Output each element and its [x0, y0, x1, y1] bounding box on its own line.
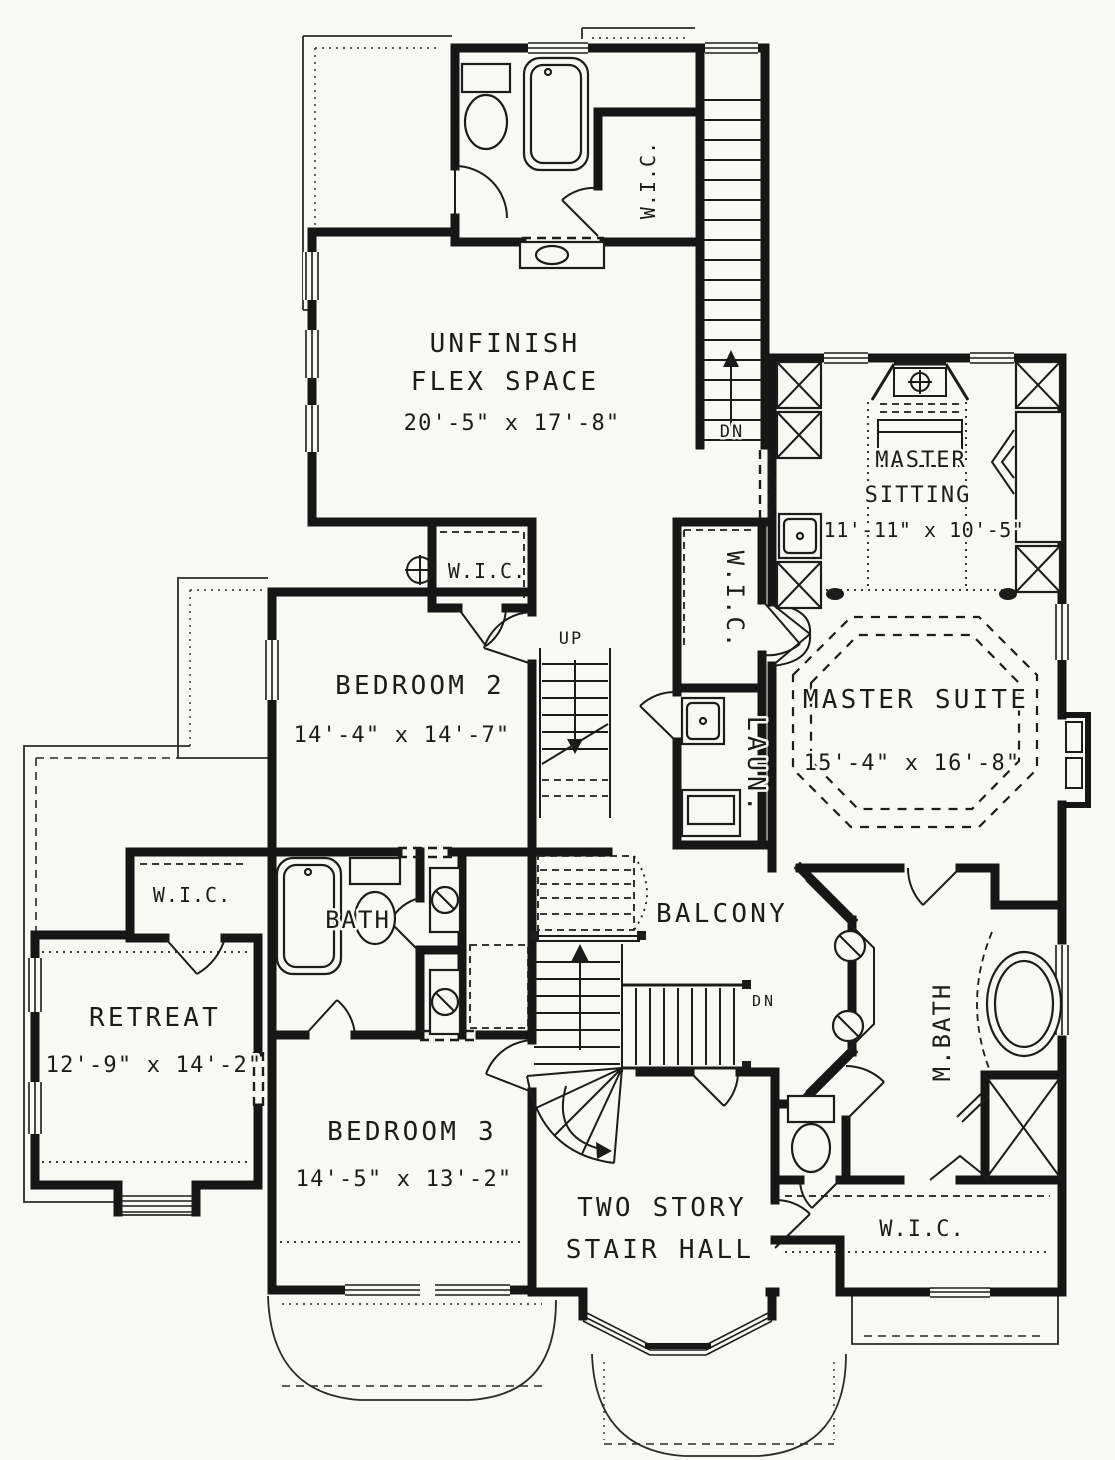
label-bedroom2-name: BEDROOM 2 [335, 671, 505, 701]
vanity-sink-icon [779, 514, 821, 558]
shower-icon [985, 1075, 1062, 1180]
cabinet-icon [777, 562, 821, 608]
label-master-suite-name: MASTER SUITE [803, 685, 1029, 715]
label-wic-bedroom2: W.I.C. [448, 559, 526, 583]
labels-layer: UNFINISH FLEX SPACE 20'-5" x 17'-8" W.I.… [46, 141, 1029, 1265]
toilet-icon [788, 1096, 834, 1172]
floor-plan: UNFINISH FLEX SPACE 20'-5" x 17'-8" W.I.… [0, 0, 1115, 1460]
cabinet-icon [1016, 546, 1060, 592]
label-stair-hall-line1: TWO STORY [577, 1193, 747, 1223]
label-flex-line1: UNFINISH [430, 329, 581, 359]
label-master-suite-dims: 15'-4" x 16'-8" [804, 751, 1021, 776]
label-bedroom3-name: BEDROOM 3 [327, 1117, 497, 1147]
label-flex-line2: FLEX SPACE [411, 367, 600, 397]
label-wic-master: W.I.C. [879, 1217, 964, 1242]
label-bedroom2-dims: 14'-4" x 14'-7" [294, 723, 511, 748]
cabinet-icon [777, 412, 821, 458]
label-wic-flex: W.I.C. [636, 141, 660, 219]
label-stairs-dn-balcony: DN [752, 992, 776, 1010]
label-bath: BATH [325, 906, 391, 934]
cabinet-icon [777, 362, 821, 408]
vanity-sink-icon [430, 970, 460, 1034]
label-stairs-up: UP [559, 629, 583, 649]
sink-icon [520, 242, 604, 268]
floor-plan-page: UNFINISH FLEX SPACE 20'-5" x 17'-8" W.I.… [0, 0, 1115, 1460]
label-wic-hall: W.I.C. [721, 551, 749, 650]
label-flex-dims: 20'-5" x 17'-8" [404, 411, 621, 436]
washer-icon [682, 790, 740, 836]
toilet-icon [462, 64, 510, 149]
label-stair-hall-line2: STAIR HALL [566, 1235, 755, 1265]
label-stairs-dn-top: DN [720, 422, 744, 442]
laundry-sink-icon [682, 698, 724, 744]
label-retreat-dims: 12'-9" x 14'-2" [46, 1053, 263, 1078]
label-master-sitting-dims: 11'-11" x 10'-5" [824, 518, 1025, 542]
label-balcony: BALCONY [656, 899, 788, 929]
label-retreat-name: RETREAT [89, 1003, 221, 1033]
label-master-sitting-line1: MASTER [875, 448, 966, 473]
label-master-bath: M.BATH [928, 983, 956, 1082]
label-master-sitting-line2: SITTING [865, 483, 972, 508]
label-laundry: LAUN. [742, 716, 771, 816]
label-wic-retreat: W.I.C. [153, 883, 231, 907]
bathtub-icon [524, 58, 588, 170]
label-bedroom3-dims: 14'-5" x 13'-2" [296, 1167, 513, 1192]
vanity-sink-icon [430, 868, 460, 932]
garden-tub-icon [987, 952, 1061, 1056]
cabinet-icon [1016, 362, 1060, 408]
